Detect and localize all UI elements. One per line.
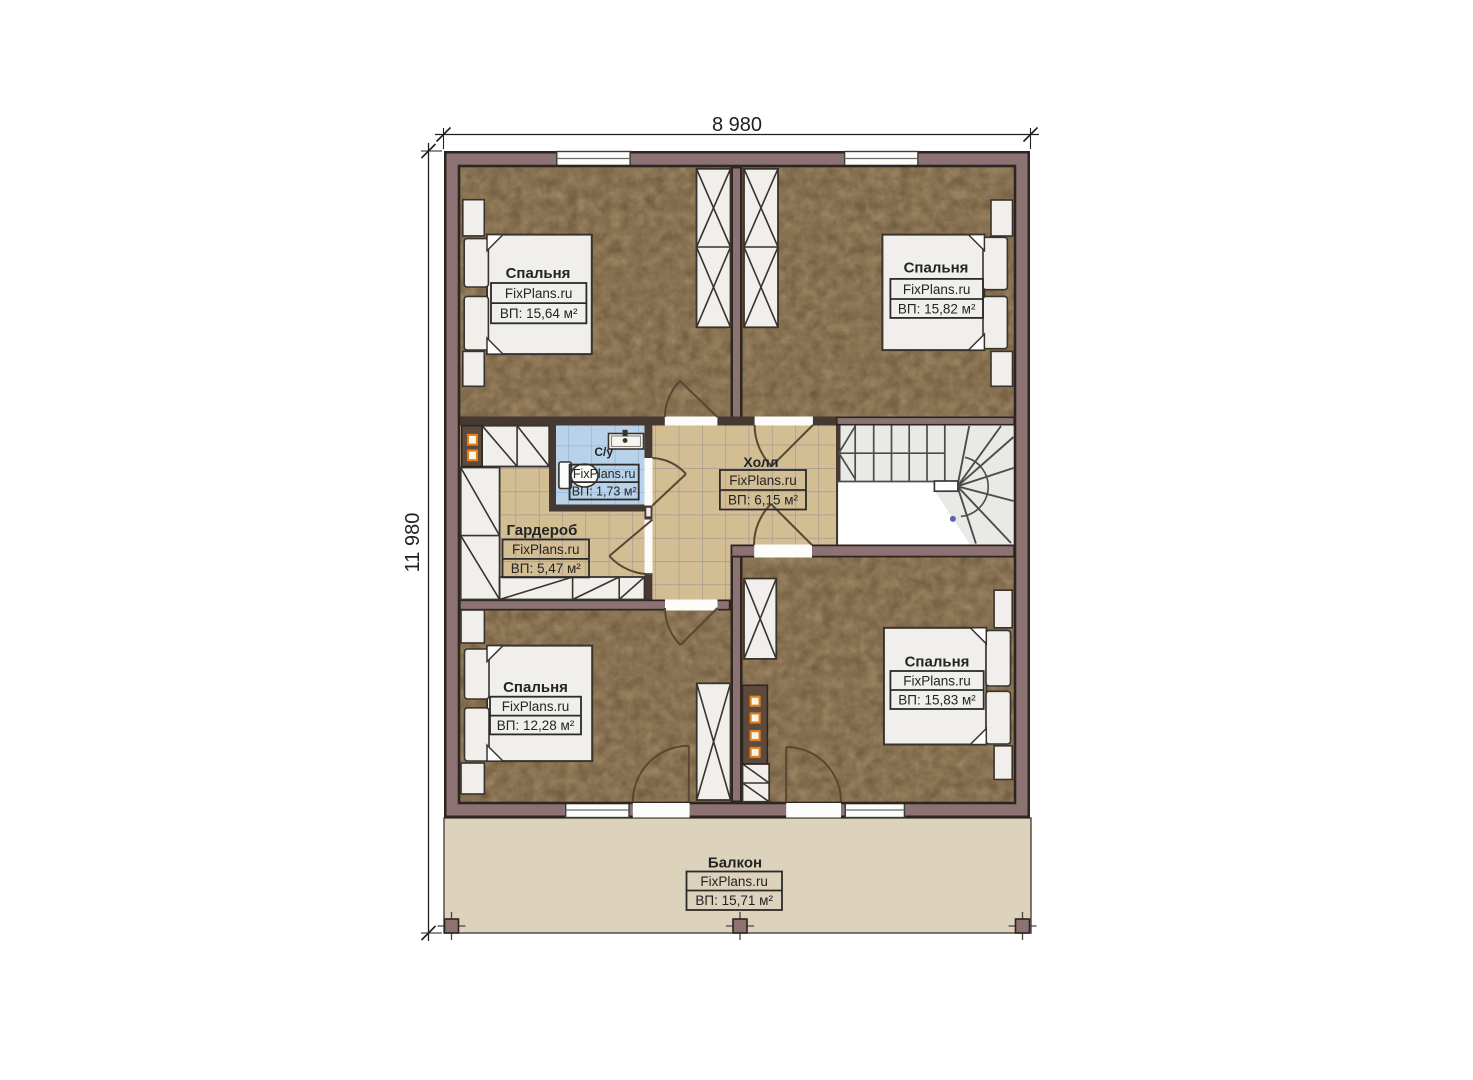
svg-text:FixPlans.ru: FixPlans.ru [505,286,573,301]
svg-text:FixPlans.ru: FixPlans.ru [729,473,797,488]
svg-text:ВП: 12,28 м²: ВП: 12,28 м² [497,718,575,733]
svg-text:FixPlans.ru: FixPlans.ru [512,542,580,557]
svg-text:8 980: 8 980 [712,114,762,136]
svg-text:Спальня: Спальня [503,679,568,696]
svg-text:ВП: 5,47 м²: ВП: 5,47 м² [511,561,582,576]
svg-text:С/у: С/у [594,445,613,459]
svg-text:Гардероб: Гардероб [506,522,577,539]
svg-text:Спальня: Спальня [506,265,571,282]
svg-text:FixPlans.ru: FixPlans.ru [700,874,768,889]
svg-text:11 980: 11 980 [402,513,424,573]
svg-text:ВП: 15,83 м²: ВП: 15,83 м² [898,692,976,707]
svg-text:ВП: 6,15 м²: ВП: 6,15 м² [728,493,799,508]
svg-text:ВП: 15,82 м²: ВП: 15,82 м² [898,301,976,316]
svg-text:ВП: 1,73 м²: ВП: 1,73 м² [572,484,637,498]
svg-text:Балкон: Балкон [708,855,762,872]
svg-text:ВП: 15,64 м²: ВП: 15,64 м² [500,306,578,321]
svg-text:FixPlans.ru: FixPlans.ru [573,467,636,481]
svg-text:Холл: Холл [743,454,778,470]
svg-text:Спальня: Спальня [905,654,970,671]
svg-text:FixPlans.ru: FixPlans.ru [903,282,971,297]
svg-text:FixPlans.ru: FixPlans.ru [903,673,971,688]
svg-text:FixPlans.ru: FixPlans.ru [502,699,570,714]
svg-text:ВП: 15,71 м²: ВП: 15,71 м² [695,893,773,908]
svg-text:Спальня: Спальня [904,260,969,277]
